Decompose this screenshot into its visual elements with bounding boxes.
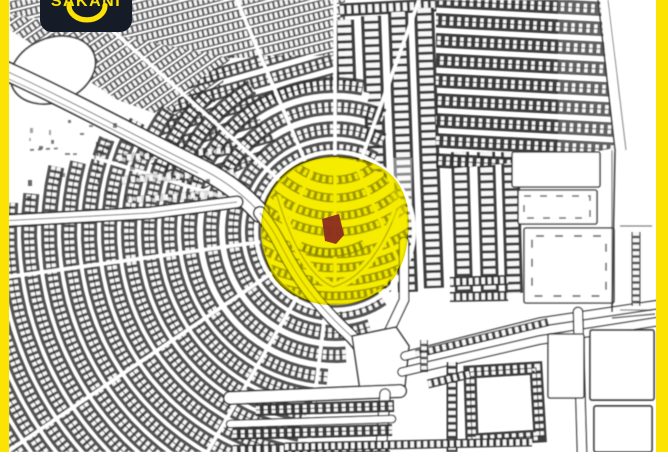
- svg-text:SAKANI: SAKANI: [51, 0, 121, 10]
